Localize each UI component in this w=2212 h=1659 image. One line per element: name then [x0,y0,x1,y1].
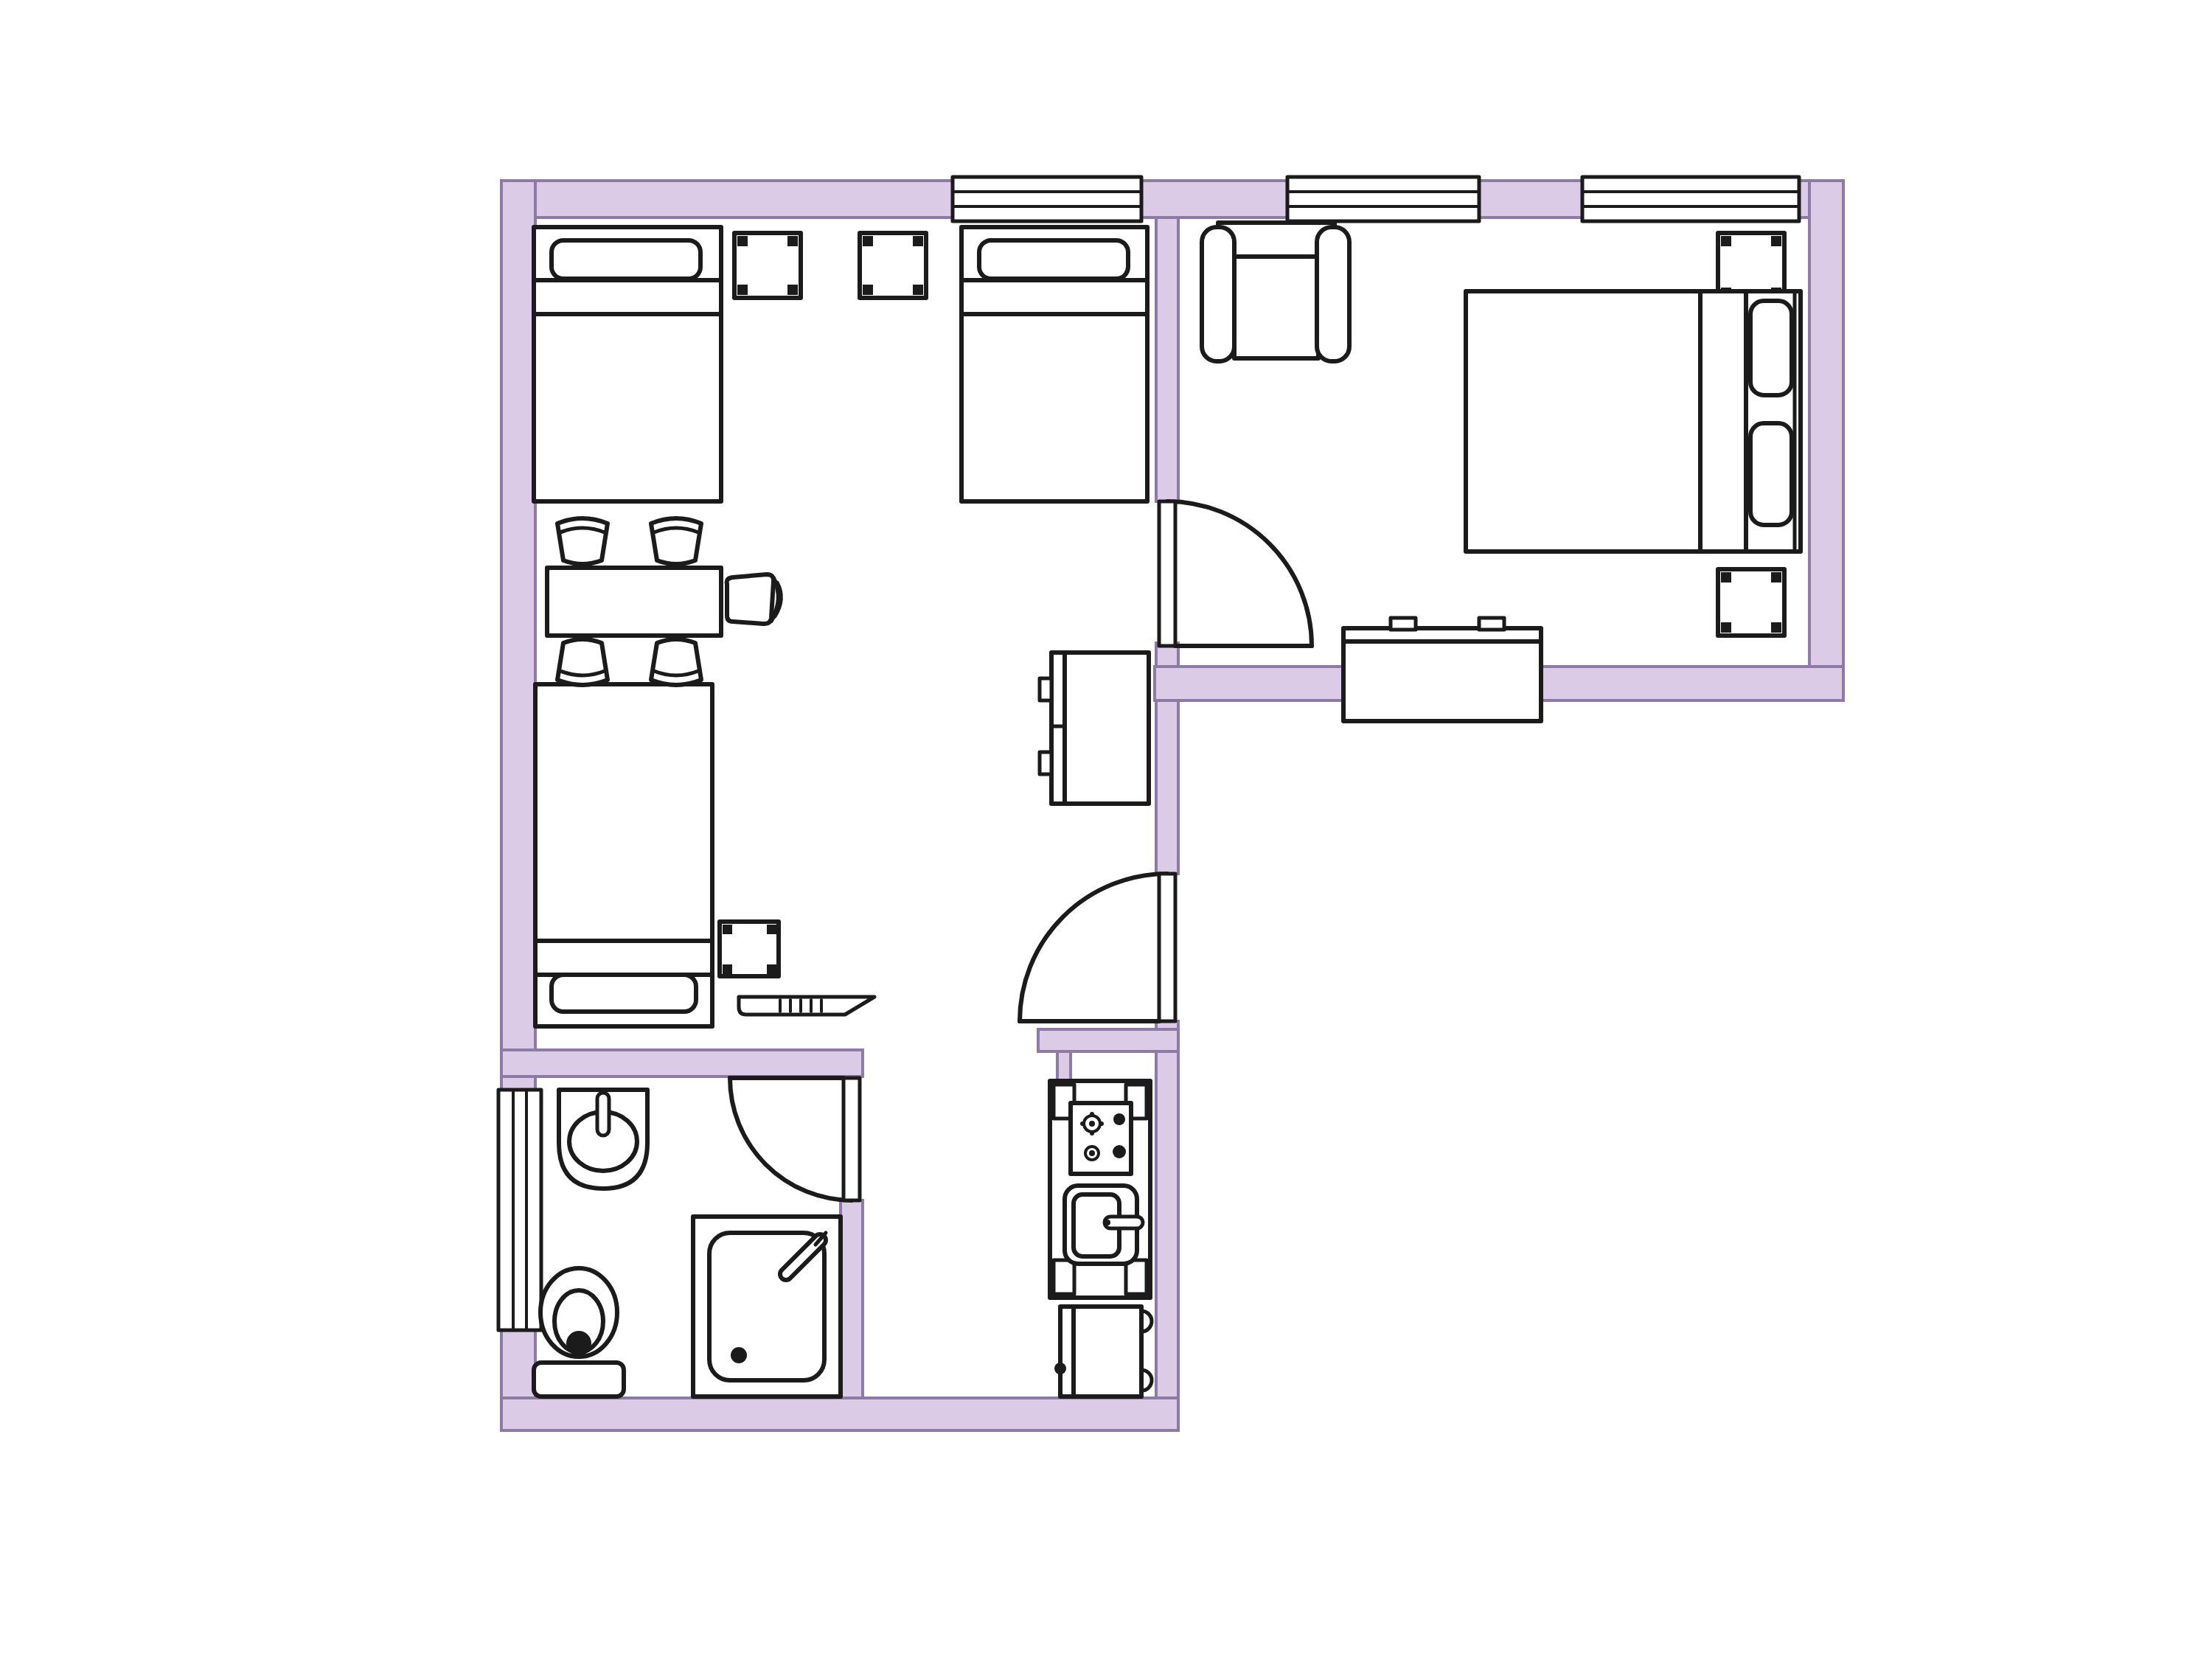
side-chair [727,574,782,624]
door-master-bedroom [1159,501,1312,646]
door-entry [1020,874,1175,1021]
kitchen-counter [1050,1081,1150,1298]
stool-1 [557,518,608,564]
wall-kitchen-top [1038,1029,1178,1051]
wall-east-lower-b [1156,1021,1178,1398]
armchair [1202,223,1349,361]
nightstand-3 [720,922,779,976]
nightstand-1 [734,233,801,298]
shower [693,1217,841,1397]
window-top-left [953,177,1141,221]
fridge [1054,1307,1152,1397]
dresser [1343,618,1541,721]
nightstand-2 [860,233,926,298]
doors-layer [730,501,1312,1200]
wall-divider-upper [1156,218,1178,501]
wall-east-lower-a [1156,700,1178,874]
radiator-shelf [739,997,874,1015]
window-master-1 [1287,177,1479,221]
stool-4 [651,639,701,685]
wall-bottom [501,1398,1178,1430]
single-bed-3 [535,684,712,1026]
bathroom-sink [559,1090,647,1189]
floor-plan-page [0,0,2212,1659]
wardrobe [1040,653,1149,804]
door-bathroom [730,1078,860,1200]
floor-plan-svg [0,0,2212,1659]
wall-bath-top [501,1050,863,1077]
stool-3 [557,639,608,685]
toilet [534,1268,624,1397]
single-bed-1 [534,227,721,501]
dining-table [547,568,721,636]
stool-2 [651,518,701,564]
window-bathroom [498,1090,541,1330]
wall-right [1809,181,1843,700]
double-bed [1466,291,1801,552]
window-master-2 [1582,177,1799,221]
nightstand-5 [1718,569,1784,636]
single-bed-2 [961,227,1147,501]
wall-bath-right [841,1200,863,1398]
